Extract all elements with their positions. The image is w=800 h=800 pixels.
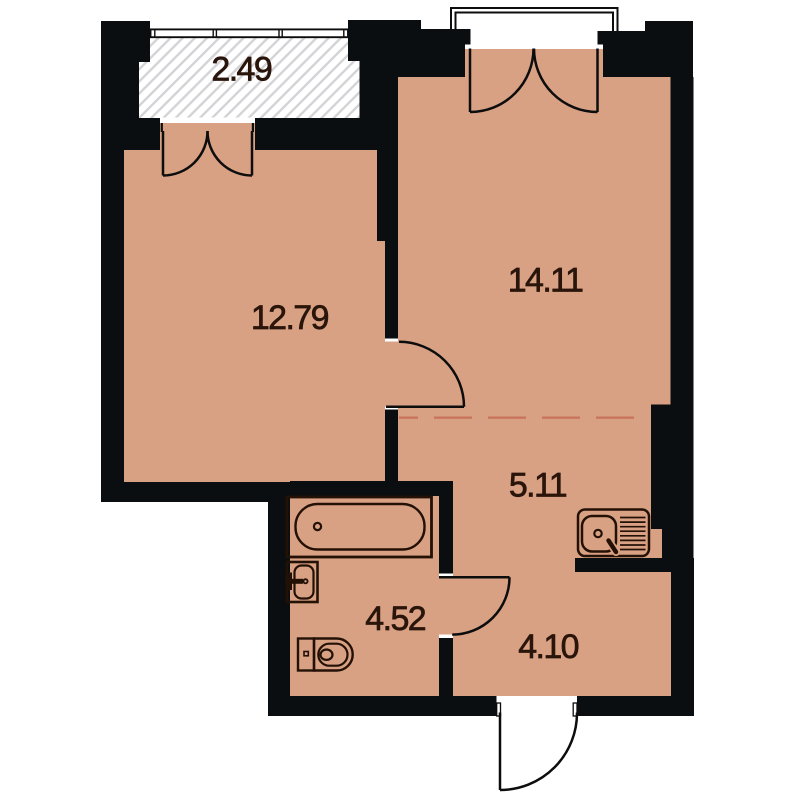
svg-text:2.49: 2.49 [211,50,271,88]
svg-text:4.10: 4.10 [518,628,578,666]
svg-text:12.79: 12.79 [251,299,329,337]
svg-text:5.11: 5.11 [509,467,567,505]
svg-text:14.11: 14.11 [508,262,583,300]
svg-text:4.52: 4.52 [365,600,425,638]
